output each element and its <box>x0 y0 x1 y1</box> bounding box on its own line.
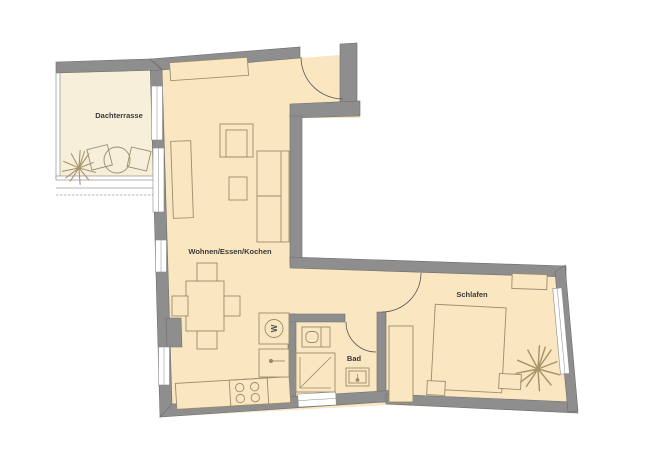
wall-bath-top <box>288 314 345 322</box>
nightstand-left <box>427 381 446 396</box>
bath-label: Bad <box>347 354 362 363</box>
dining-chair-bottom <box>197 331 217 349</box>
dining-table <box>186 281 224 331</box>
terrace-label: Dachterrasse <box>95 111 143 120</box>
terrace-railing-left <box>56 73 60 178</box>
kitchen-sink-unit <box>259 349 289 377</box>
wall-entry-jamb <box>340 43 357 104</box>
living-label: Wohnen/Essen/Kochen <box>188 247 272 256</box>
wall-pier-left <box>166 318 182 347</box>
nightstand-right <box>499 373 522 389</box>
apartment-floor <box>150 44 578 417</box>
washing-machine-label: W <box>270 324 279 332</box>
dresser <box>512 273 548 289</box>
entrance-door-opening <box>300 41 340 59</box>
floor-plan-svg: Dachterrasse Wohnen/Essen/Kochen Bad Sch… <box>0 0 650 456</box>
wall-living-right <box>290 116 302 264</box>
terrace-floor <box>60 70 155 177</box>
dining-chair-right <box>224 296 240 316</box>
wardrobe <box>389 326 413 402</box>
dining-chair-left <box>172 296 188 316</box>
armchair <box>220 124 253 157</box>
dining-chair-top <box>197 263 217 281</box>
bed <box>431 304 506 393</box>
coffee-table <box>229 177 247 200</box>
tv-board <box>171 141 194 219</box>
bedroom-label: Schlafen <box>456 290 488 299</box>
floor-plan: Dachterrasse Wohnen/Essen/Kochen Bad Sch… <box>0 0 650 456</box>
wall-entry-notch <box>290 101 360 118</box>
wall-bed-separator <box>377 312 386 402</box>
sofa <box>257 151 289 242</box>
